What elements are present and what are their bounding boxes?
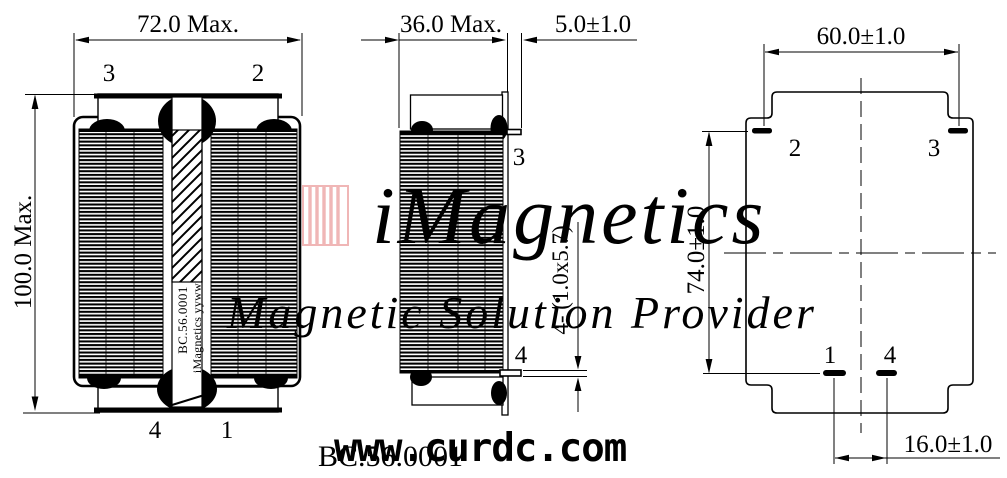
bottom-pin-label-3: 3: [928, 135, 941, 162]
arrowhead-icon: [872, 455, 886, 462]
pin-row-span-dimension: 60.0±1.0: [817, 23, 906, 50]
transformer-technical-drawing: 72.0 Max. 100.0 Max.: [0, 0, 1007, 478]
side-width-dimension: 36.0 Max.: [400, 11, 502, 38]
side-pin-label-4: 4: [515, 342, 528, 369]
watermark-brand: iMagnetics: [372, 170, 766, 261]
side-pin-label-3: 3: [513, 144, 526, 171]
watermark-tagline: Magnetic Solution Provider: [226, 287, 817, 338]
arrowhead-icon: [32, 397, 39, 412]
arrowhead-icon: [523, 37, 537, 44]
pin-3-side: [507, 130, 521, 135]
front-pin-label-3: 3: [103, 60, 116, 87]
footer: BC.56.0001 www.curdc.com: [318, 426, 626, 473]
front-pin-label-4: 4: [149, 417, 162, 444]
pin-1-pad: [823, 370, 846, 376]
watermark: iMagnetics Magnetic Solution Provider: [226, 170, 817, 338]
arrowhead-icon: [575, 356, 582, 370]
arrowhead-icon: [765, 49, 779, 56]
arrowhead-icon: [75, 37, 89, 44]
front-height-dimension: 100.0 Max.: [10, 195, 37, 310]
pin-pitch-dimension: 16.0±1.0: [904, 431, 993, 458]
arrowhead-icon: [835, 455, 849, 462]
pin-3-pad: [948, 128, 968, 134]
front-width-dimension: 72.0 Max.: [137, 11, 239, 38]
solder-blob: [491, 381, 507, 405]
arrowhead-icon: [944, 49, 958, 56]
pin-4-side: [500, 370, 521, 376]
bottom-pin-label-4: 4: [884, 342, 897, 369]
arrowhead-icon: [287, 37, 301, 44]
arrowhead-icon: [706, 359, 713, 374]
pin-4-pad: [876, 370, 897, 376]
pin-2-pad: [752, 128, 772, 134]
front-view: 72.0 Max. 100.0 Max.: [10, 11, 302, 444]
imagnetics-logo-icon: [303, 186, 348, 245]
part-marking-line2: iMagnetics yyww: [190, 283, 204, 373]
front-pin-label-2: 2: [252, 60, 265, 87]
footer-website: www.curdc.com: [334, 426, 626, 471]
bottom-pin-label-2: 2: [789, 135, 802, 162]
pin-length-dimension: 5.0±1.0: [555, 11, 631, 38]
drawing-svg: 72.0 Max. 100.0 Max.: [0, 0, 1007, 478]
arrowhead-icon: [32, 95, 39, 110]
arrowhead-icon: [575, 378, 582, 392]
arrowhead-icon: [385, 37, 399, 44]
center-column-hatch: [172, 130, 202, 282]
winding-left: [79, 129, 163, 378]
front-pin-label-1: 1: [221, 417, 234, 444]
bottom-pin-label-1: 1: [824, 342, 837, 369]
winding-right: [211, 129, 297, 378]
arrowhead-icon: [706, 132, 713, 147]
part-marking-line1: BC.56.0001: [175, 286, 190, 354]
